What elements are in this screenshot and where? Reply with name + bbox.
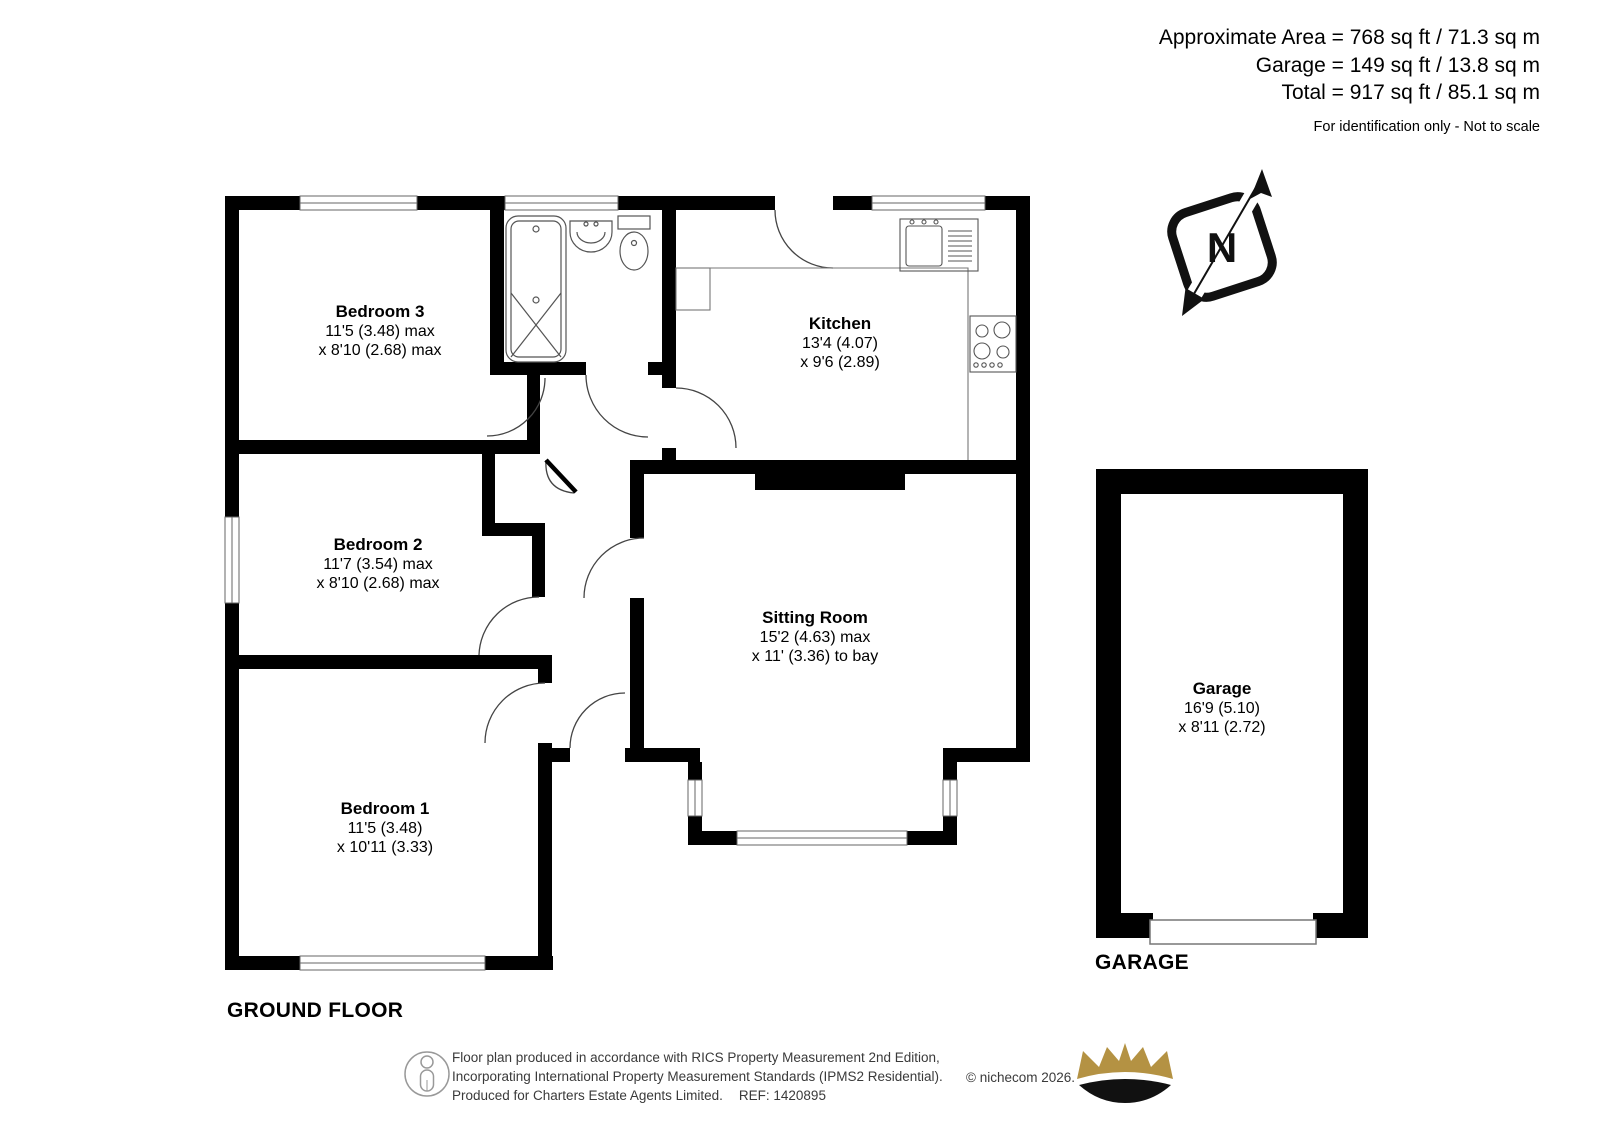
room-label-kitchen: Kitchen 13'4 (4.07) x 9'6 (2.89) xyxy=(800,314,880,373)
room-label-bedroom1: Bedroom 1 11'5 (3.48) x 10'11 (3.33) xyxy=(337,799,433,858)
room-label-bedroom2: Bedroom 2 11'7 (3.54) max x 8'10 (2.68) … xyxy=(316,535,439,594)
kitchen-appliance xyxy=(676,268,710,310)
footer-copyright: © nichecom 2026. xyxy=(966,1070,1075,1085)
room-label-sitting-room: Sitting Room 15'2 (4.63) max x 11' (3.36… xyxy=(752,608,878,667)
hob-icon xyxy=(970,316,1016,372)
kitchen-sink-icon xyxy=(900,219,978,271)
cupboard-door-leaf xyxy=(546,460,576,492)
north-compass-icon: N xyxy=(1167,169,1278,316)
garage-floor-label: GARAGE xyxy=(1095,951,1189,975)
total-area-line: Total = 917 sq ft / 85.1 sq m xyxy=(900,79,1540,107)
footer-ref: REF: 1420895 xyxy=(739,1088,826,1103)
footer-produced-for: Produced for Charters Estate Agents Limi… xyxy=(452,1088,723,1103)
bathroom-fixtures xyxy=(506,216,650,362)
identification-note: For identification only - Not to scale xyxy=(900,114,1540,142)
bedroom1-door-arc xyxy=(485,683,545,743)
garage-door xyxy=(1150,920,1316,944)
footer-line3: Produced for Charters Estate Agents Limi… xyxy=(452,1088,826,1103)
approximate-area-line: Approximate Area = 768 sq ft / 71.3 sq m xyxy=(900,24,1540,52)
back-door-arc xyxy=(570,693,625,748)
kitchen-door-arc xyxy=(676,388,736,448)
footer-line2: Incorporating International Property Mea… xyxy=(452,1069,943,1084)
basin-icon xyxy=(570,221,612,252)
room-label-garage: Garage 16'9 (5.10) x 8'11 (2.72) xyxy=(1178,679,1265,738)
garage-area-line: Garage = 149 sq ft / 13.8 sq m xyxy=(900,52,1540,80)
compass-n-label: N xyxy=(1207,224,1237,271)
ground-floor-label: GROUND FLOOR xyxy=(227,999,403,1023)
sitting-room-door-arc xyxy=(584,538,644,598)
crown-logo xyxy=(1077,1043,1173,1103)
rics-person-icon xyxy=(405,1052,449,1096)
area-summary: Approximate Area = 768 sq ft / 71.3 sq m… xyxy=(900,24,1540,141)
bathtub-icon xyxy=(506,216,566,362)
front-door-arc xyxy=(775,210,833,268)
bathroom-door-arc xyxy=(586,375,648,437)
floorplan-drawing: N xyxy=(0,0,1600,1131)
footer-line1: Floor plan produced in accordance with R… xyxy=(452,1050,940,1065)
room-label-bedroom3: Bedroom 3 11'5 (3.48) max x 8'10 (2.68) … xyxy=(318,302,441,361)
bedroom2-door-arc xyxy=(479,597,539,655)
toilet-icon xyxy=(618,216,650,270)
floorplan-page: N Approximate Area = 768 sq ft / 71.3 sq… xyxy=(0,0,1600,1131)
